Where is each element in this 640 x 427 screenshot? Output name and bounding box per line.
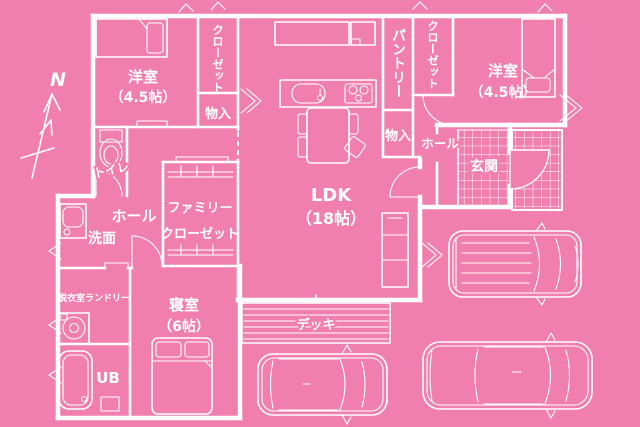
room-label-unit-bath: UB — [96, 369, 120, 387]
room-label-ldk-size: （18帖） — [296, 209, 366, 228]
dining-table-icon — [298, 108, 366, 163]
door-arc — [132, 236, 162, 266]
room-label-family-closet-2: クローゼット — [161, 226, 239, 242]
room-label-closet-ne: クローゼット — [426, 20, 440, 89]
room-label-storage-e: 物入 — [385, 128, 411, 144]
washing-machine-icon — [59, 313, 89, 344]
room-label-closet-nw: クローゼット — [211, 24, 225, 93]
room-label-family-closet-1: ファミリー — [167, 201, 232, 216]
car-van-icon — [449, 223, 581, 305]
stove-icon — [345, 84, 372, 103]
tv-board-icon — [382, 213, 408, 287]
window-arrow-icon — [179, 2, 552, 12]
window-arrow-icon — [241, 89, 261, 113]
room-label-washroom: 洗面 — [88, 230, 116, 247]
room-label-deck: デッキ — [296, 317, 335, 333]
room-label-bedroom-ne-size: （4.5帖） — [470, 84, 537, 101]
bed-icon-s — [152, 338, 212, 414]
bed-icon-nw — [96, 19, 167, 57]
car-compact-icon — [258, 345, 387, 424]
room-label-storage-nw: 物入 — [205, 106, 231, 122]
kitchen-icon — [275, 22, 376, 107]
room-label-pantry: パントリー — [390, 28, 406, 98]
room-label-hall-w: ホール — [111, 207, 156, 225]
compass-north-icon — [21, 94, 60, 178]
door-arc — [390, 167, 420, 197]
floorplan-canvas: N 洋室 （4.5帖） クローゼット 物入 パントリー クローゼット 洋室 （4… — [0, 0, 640, 427]
room-label-bedroom-ne: 洋室 — [488, 62, 518, 80]
floorplan: N 洋室 （4.5帖） クローゼット 物入 パントリー クローゼット 洋室 （4… — [0, 0, 640, 427]
room-label-bedroom-nw: 洋室 — [128, 68, 158, 86]
room-label-ldk: LDK — [311, 185, 352, 206]
door-arc — [423, 95, 453, 125]
car-sedan-icon — [423, 333, 592, 418]
room-label-bedroom-s: 寝室 — [169, 296, 199, 314]
compass-north-label: N — [50, 69, 66, 91]
washbasin-icon — [60, 204, 86, 238]
room-label-bedroom-s-size: （6帖） — [158, 318, 210, 335]
sliding-door-marks — [105, 121, 228, 268]
room-label-toilet: トイレ — [92, 159, 130, 180]
room-label-hall-e: ホール — [421, 136, 459, 151]
room-label-bedroom-nw-size: （4.5帖） — [110, 89, 177, 106]
room-label-entrance: 玄関 — [470, 158, 498, 175]
opening-dashed-lines — [238, 48, 383, 160]
window-arrow-icon — [422, 243, 442, 267]
room-label-laundry: 脱衣室ランドリー — [58, 292, 130, 304]
